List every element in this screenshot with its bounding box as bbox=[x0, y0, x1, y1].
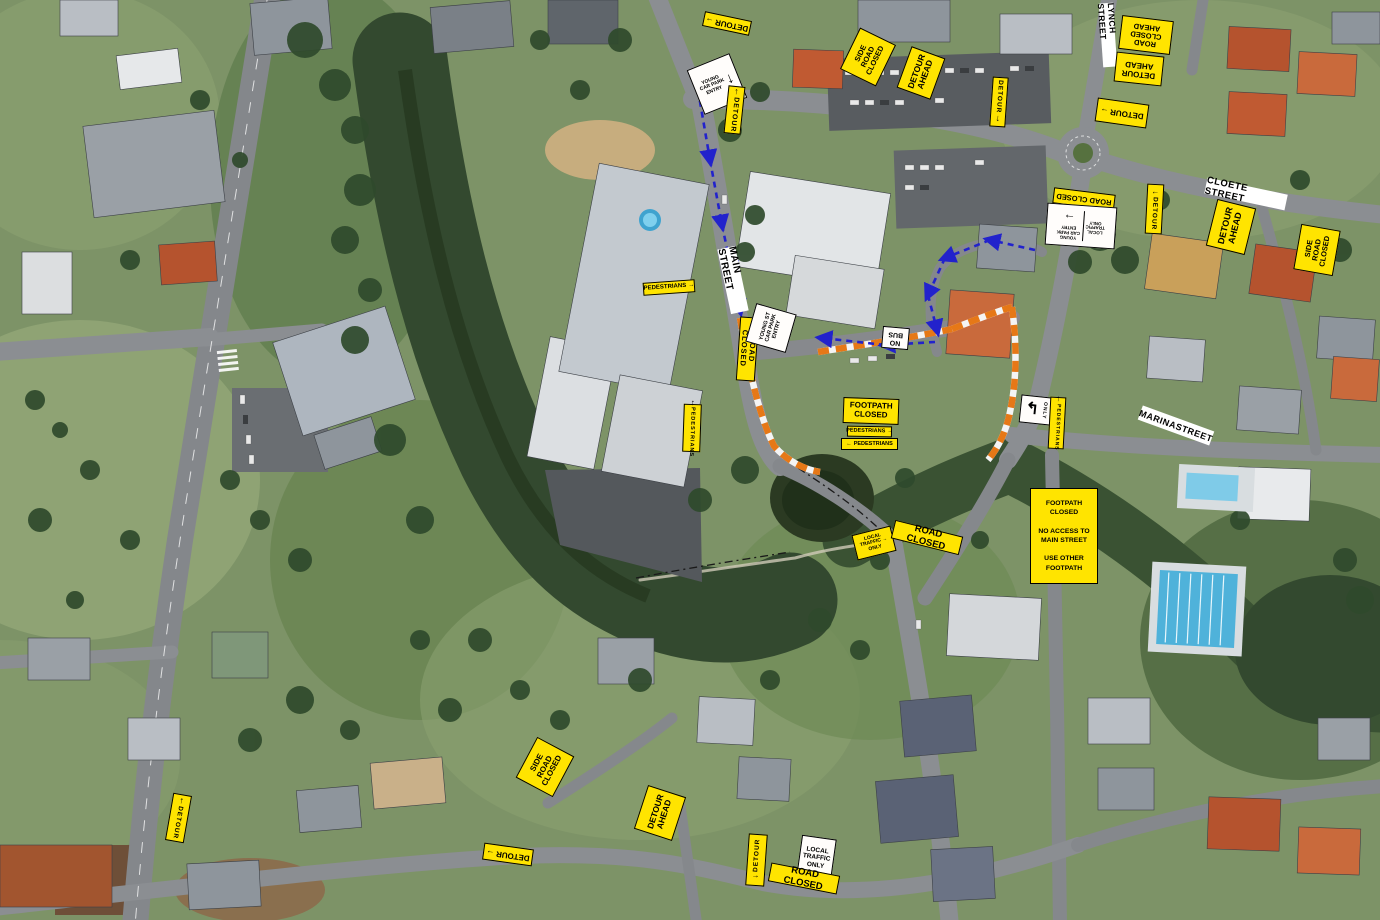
arrow-icon: → bbox=[1063, 211, 1076, 225]
sign-pedestrians-vertical-marina: ↑ PEDESTRIANS bbox=[1048, 397, 1067, 450]
sign-road-closed-ahead-ne: ROAD CLOSED AHEAD bbox=[1118, 15, 1174, 55]
sign-detour-vertical-cloete: ← DETOUR bbox=[1145, 184, 1165, 235]
arrow-icon: → bbox=[1100, 106, 1109, 116]
curved-arrow-icon: ↰ bbox=[1025, 400, 1040, 419]
arrow-up-icon: ↑ bbox=[734, 87, 740, 97]
arrow-down-icon: ↓ bbox=[995, 114, 1000, 124]
sign-pedestrians-west: ← PEDESTRIANS bbox=[841, 438, 898, 450]
sign-detour-ahead-ne: DETOUR AHEAD bbox=[1114, 52, 1165, 87]
road-marking-no-bus: NO BUS bbox=[881, 326, 910, 350]
traffic-management-map: LYNCH STREET CLOETE STREET MAIN STREET M… bbox=[0, 0, 1380, 920]
satellite-map bbox=[0, 0, 1380, 920]
sign-pedestrians-east: PEDESTRIANS → bbox=[847, 426, 892, 438]
sign-footpath-closed-park: FOOTPATH CLOSED bbox=[843, 397, 900, 425]
arrow-right-icon: → bbox=[688, 282, 694, 289]
arrow-icon: → bbox=[486, 847, 495, 857]
arrow-icon: → bbox=[705, 15, 715, 25]
local-traffic-panel: LOCAL TRAFFIC ONLY bbox=[1085, 219, 1105, 235]
sign-local-traffic-combo: LOCAL TRAFFIC ONLY YOUNG CAR PARK ENTRY … bbox=[1045, 203, 1118, 250]
sign-side-road-closed-cloete: SIDE ROAD CLOSED bbox=[1293, 224, 1340, 276]
sign-footpath-notice: FOOTPATH CLOSED NO ACCESS TO MAIN STREET… bbox=[1030, 488, 1098, 584]
sign-detour-vertical-south: ← DETOUR bbox=[745, 833, 768, 886]
arrow-up-icon: ↑ bbox=[691, 398, 695, 407]
arrow-right-icon: → bbox=[887, 429, 893, 435]
arrow-left-icon: ← bbox=[846, 441, 852, 447]
arrow-left-icon: ← bbox=[751, 872, 760, 881]
street-label-lynch: LYNCH STREET bbox=[1099, 3, 1117, 68]
arrow-up-icon: ↑ bbox=[1056, 395, 1060, 404]
sign-pedestrians-vertical-main: ↑ PEDESTRIANS bbox=[682, 404, 702, 453]
arrow-left-icon: ← bbox=[1151, 188, 1159, 197]
divider bbox=[1082, 211, 1085, 241]
young-carpark-panel: YOUNG CAR PARK ENTRY bbox=[1056, 224, 1080, 240]
